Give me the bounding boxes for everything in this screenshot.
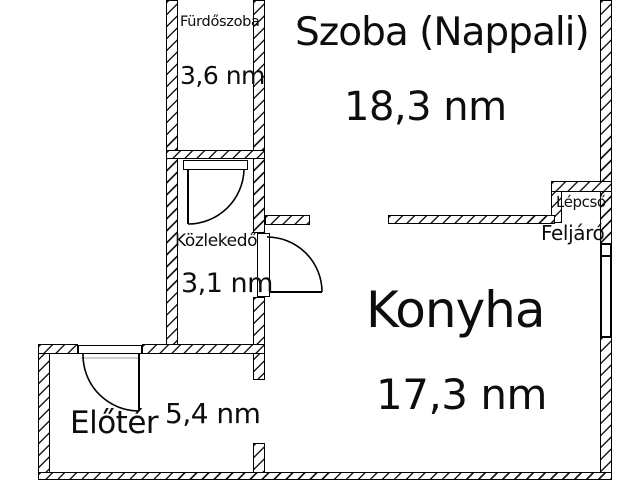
wall-bath-bottom: [166, 150, 265, 159]
wall-konyha-top-stub: [265, 215, 310, 225]
room-area-furdoszoba: 3,6 nm: [180, 63, 265, 89]
door-casing-furdoszoba: [183, 160, 248, 170]
furdoszoba-door-arc: [188, 170, 244, 224]
room-area-kozlekedo: 3,1 nm: [181, 270, 273, 298]
room-label-konyha: Konyha: [366, 284, 545, 337]
eloter-door-arc: [83, 354, 139, 411]
room-area-konyha: 17,3 nm: [376, 373, 547, 417]
wall-bath-column-left: [166, 0, 178, 353]
wall-bottom-outer: [38, 472, 612, 480]
wall-eloter-top-left: [38, 344, 78, 354]
stair-label-line2: Feljáró: [541, 223, 604, 244]
wall-bath-column-right-upper: [253, 0, 265, 233]
door-casing-eloter: [78, 345, 142, 354]
konyha-door-arc: [267, 237, 322, 292]
wall-eloter-top-right: [142, 344, 265, 354]
wall-bath-column-right-lower: [253, 297, 265, 380]
room-label-kozlekedo: Közlekedő: [175, 233, 257, 251]
room-area-szoba: 18,3 nm: [344, 86, 507, 128]
floor-plan: Fürdőszoba 3,6 nm Szoba (Nappali) 18,3 n…: [0, 0, 640, 480]
wall-right-outer-lower: [600, 337, 612, 480]
stair-label-line1: Lépcső: [556, 195, 606, 211]
room-label-furdoszoba: Fürdőszoba: [180, 15, 260, 30]
window-konyha: [600, 244, 612, 337]
room-label-szoba: Szoba (Nappali): [295, 13, 589, 54]
window-konyha-tick: [601, 255, 611, 257]
wall-stair-step-top: [551, 181, 612, 192]
room-area-eloter: 5,4 nm: [165, 399, 260, 428]
room-label-eloter: Előtér: [70, 407, 158, 440]
wall-konyha-top-long: [388, 215, 555, 224]
wall-left-outer: [38, 345, 50, 480]
